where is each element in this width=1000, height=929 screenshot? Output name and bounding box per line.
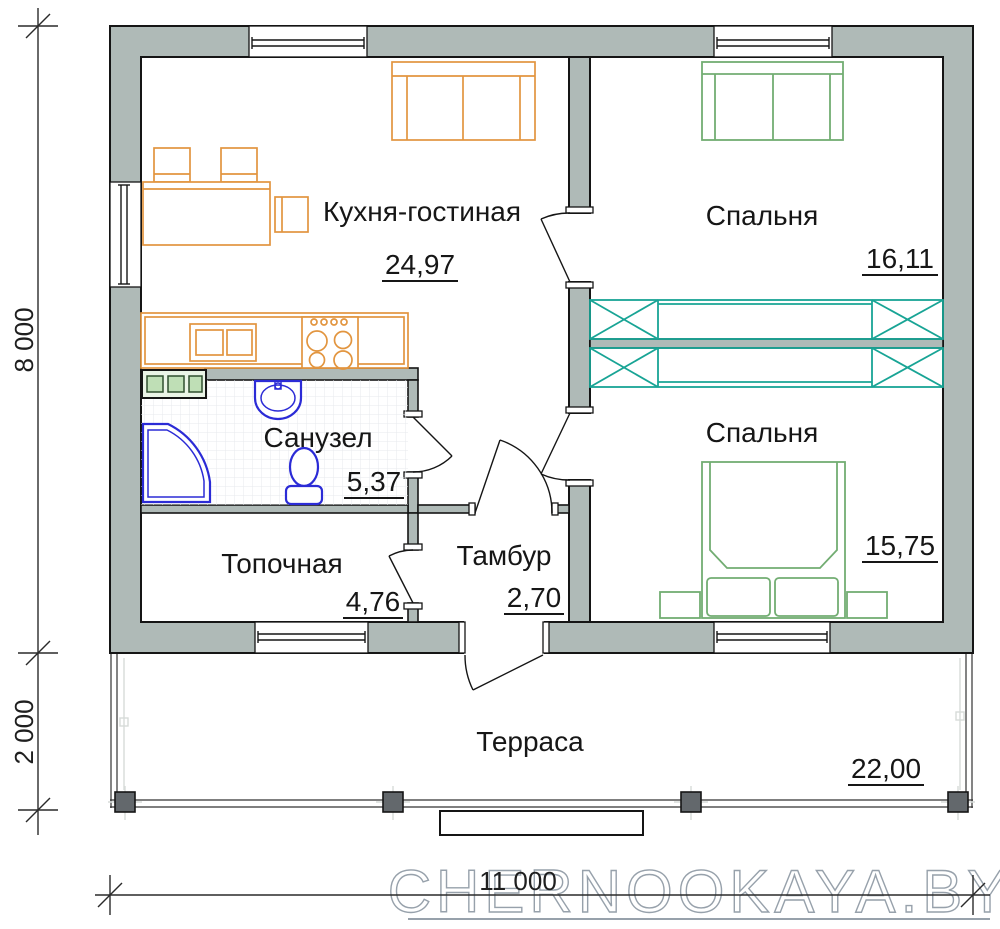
nightstand-icon — [660, 592, 700, 618]
kitchen-counter-icon — [141, 313, 408, 368]
sofa-icon-bedroom1 — [702, 62, 843, 140]
floor-plan-drawing: Кухня-гостиная 24,97 Спальня 16,11 Спаль… — [0, 0, 1000, 929]
door-bedroom1 — [541, 207, 593, 288]
window-bedroom1-top — [714, 26, 832, 57]
room-label-bathroom: Санузел — [263, 422, 372, 453]
dimension-label-8000: 8 000 — [9, 307, 39, 372]
room-label-vestibule: Тамбур — [456, 540, 551, 571]
radiator-icon — [142, 370, 206, 398]
sofa-icon-kitchen — [392, 62, 535, 140]
terrace-post — [376, 786, 410, 820]
terrace-post — [941, 786, 975, 820]
room-label-bedroom2: Спальня — [706, 417, 819, 448]
toilet-icon — [286, 448, 322, 504]
dimension-label-11000: 11 000 — [479, 866, 557, 896]
room-label-kitchen-living: Кухня-гостиная — [323, 196, 521, 227]
terrace-post — [108, 786, 142, 820]
floor-plan-page: Кухня-гостиная 24,97 Спальня 16,11 Спаль… — [0, 0, 1000, 929]
room-area-terrace: 22,00 — [851, 753, 921, 784]
terrace-post — [674, 786, 708, 820]
entrance-step — [440, 811, 643, 835]
nightstand-icon — [847, 592, 887, 618]
room-area-bedroom1: 16,11 — [866, 243, 934, 274]
room-label-terrace: Терраса — [476, 726, 584, 757]
dimension-line-left: 8 000 2 000 — [9, 8, 58, 835]
window-boiler-bottom — [255, 622, 368, 653]
door-bathroom — [404, 411, 452, 478]
bed-icon — [660, 462, 887, 618]
door-entrance-arc — [465, 655, 543, 690]
kitchen-sink-icon — [190, 324, 256, 361]
room-area-vestibule: 2,70 — [507, 582, 562, 613]
room-label-bedroom1: Спальня — [706, 200, 819, 231]
dimension-label-2000: 2 000 — [9, 699, 39, 764]
door-vestibule — [469, 440, 558, 515]
wardrobe-icon-bedroom2 — [590, 348, 943, 387]
window-kitchen-left — [110, 182, 141, 287]
window-bedroom2-bottom — [714, 622, 830, 653]
room-area-kitchen-living: 24,97 — [385, 249, 455, 280]
stove-icon — [302, 317, 358, 369]
room-area-boiler-room: 4,76 — [346, 586, 401, 617]
wardrobe-icon-bedroom1 — [590, 300, 943, 339]
window-kitchen-top — [249, 26, 367, 57]
entrance-opening — [459, 620, 549, 655]
washbasin-icon — [255, 381, 301, 419]
door-bedroom2 — [541, 407, 593, 486]
room-area-bathroom: 5,37 — [347, 466, 402, 497]
room-area-bedroom2: 15,75 — [865, 530, 935, 561]
room-label-boiler-room: Топочная — [221, 548, 342, 579]
dining-table-icon — [143, 148, 308, 245]
